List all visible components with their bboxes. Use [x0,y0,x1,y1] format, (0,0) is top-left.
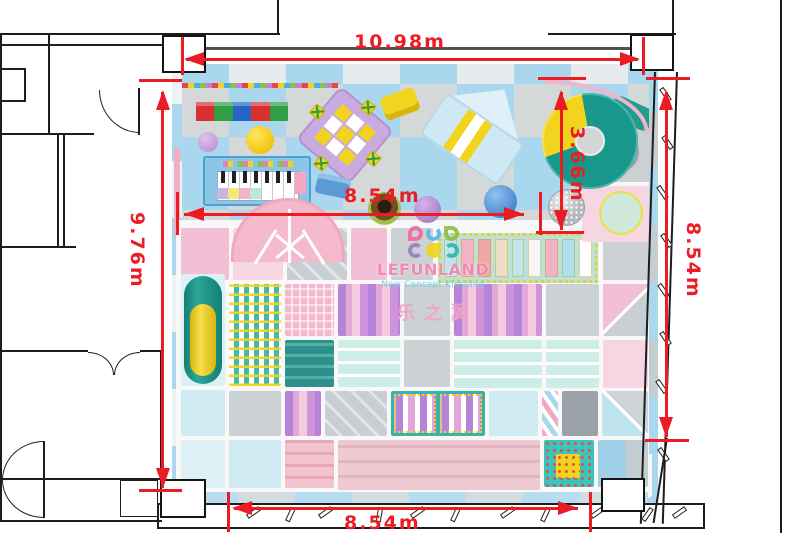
watermark-tagline: New Concept Kidsland [368,280,498,290]
door-arc [99,90,140,133]
play-cell [489,391,538,436]
play-cell-shelf [285,340,334,387]
wall [0,520,162,522]
floor-plan: LEFUNLAND New Concept Kidsland 乐之翼 [0,0,800,533]
wall [0,44,162,46]
wall [703,503,705,529]
play-cell [229,391,281,436]
door-arc [2,441,44,480]
play-cell-rollers [285,391,321,436]
dim-arrow [184,52,204,66]
dim-inner-line [184,213,524,216]
wall [140,350,162,352]
ball-pit-cell [544,440,594,487]
dim-tick [139,489,182,492]
play-cell-ramp [325,391,387,436]
play-cell-slope [602,391,648,436]
play-cell-glass [546,340,599,388]
dim-arrow [554,210,568,230]
wall [0,133,94,135]
dim-arrow [554,90,568,110]
dim-tick [227,492,230,532]
dim-arrow [504,207,524,221]
dim-arrow [659,417,673,437]
dim-bottom-line [234,507,578,510]
dim-bottom-label: 8.54m [344,512,421,533]
column-box [120,480,158,517]
play-cell [181,390,225,436]
dim-tick [589,492,592,532]
dim-tick [181,37,184,75]
roller-tube-yellow [190,304,216,376]
play-cell-slope [603,284,648,336]
door-arc [88,352,114,375]
purple-ball-small [198,132,218,152]
door-arc [2,480,44,518]
play-cell-shelf [285,440,334,488]
watermark-brand: LEFUNLAND [368,260,498,279]
play-cell-platform [338,440,540,490]
dim-left-label: 9.76m [126,212,148,289]
wall [0,33,2,522]
wall [277,0,279,34]
wall-hatch [672,506,687,519]
play-cell-stripe [542,391,558,436]
wall [63,135,65,247]
dim-tick [536,231,584,234]
dim-depth-label: 3.66m [566,126,588,203]
lefunland-logo-icon [368,226,498,258]
play-cell-frames [391,391,485,436]
wall [57,135,59,247]
dim-tick [176,192,179,235]
dim-top-line [186,58,638,61]
wall [0,33,280,35]
dim-tick [539,192,542,235]
play-cell-glass [454,340,542,388]
dim-arrow [659,90,673,110]
door-arc [114,352,140,375]
watermark: LEFUNLAND New Concept Kidsland 乐之翼 [368,226,498,325]
dim-top-label: 10.98m [354,31,446,53]
play-cell [404,340,450,387]
play-cell [562,391,598,436]
ball-pool-circle [599,191,643,235]
play-cell [181,228,229,280]
play-cell-glass [338,340,400,387]
dim-tick [645,439,689,442]
wall [780,0,782,533]
dim-right-label: 8.54m [682,222,704,299]
dim-tick [139,79,182,82]
dim-arrow [156,468,170,488]
dim-arrow [156,90,170,110]
dim-tick [538,77,586,80]
play-cell-net-panel [285,284,334,336]
play-cell [546,284,599,336]
dim-arrow [558,501,578,515]
dim-right-line [665,92,668,437]
wall [672,0,674,35]
dim-tick [642,37,645,75]
play-cell [603,340,648,388]
yellow-ball [246,126,274,154]
wall [157,527,705,529]
dim-left-line [161,92,164,488]
dim-tick [646,77,690,80]
column [601,478,645,512]
wall [0,350,88,352]
dim-arrow [232,501,252,515]
play-cell [229,440,281,488]
toy-blocks [196,102,288,121]
floor-top-border [172,64,658,84]
climbing-net-cell [229,284,281,386]
dim-arrow [184,207,204,221]
dim-inner-label: 8.54m [344,185,421,207]
bunting-strip [182,83,338,88]
dim-arrow [620,52,640,66]
wall [48,33,50,135]
watermark-chinese-name: 乐之翼 [377,299,498,325]
wall-niche [0,68,26,102]
wall [0,246,76,248]
